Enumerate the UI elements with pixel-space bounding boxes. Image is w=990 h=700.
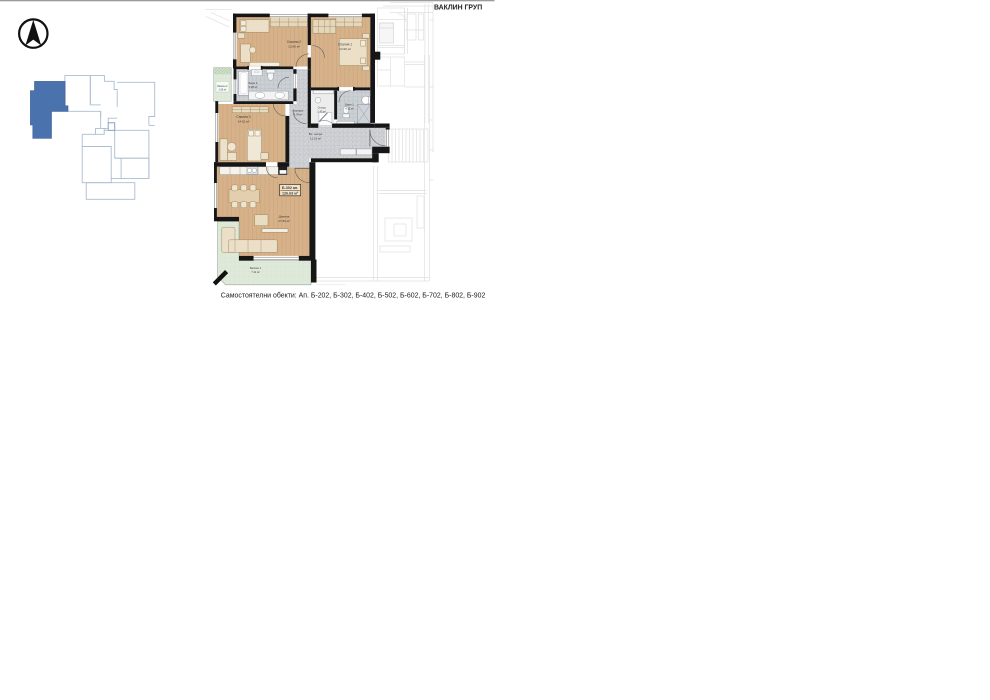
svg-text:126.63 м²: 126.63 м²: [282, 192, 299, 196]
svg-text:Баня 1: Баня 1: [345, 103, 354, 107]
svg-text:Б-302 ап.: Б-302 ап.: [282, 186, 298, 190]
svg-text:7.11 м²: 7.11 м²: [251, 270, 259, 274]
svg-text:4.15 м²: 4.15 м²: [345, 106, 354, 110]
svg-text:27.84 м²: 27.84 м²: [278, 219, 289, 223]
svg-text:13.06 м²: 13.06 м²: [288, 45, 300, 49]
svg-text:ВАКЛИН ГРУП: ВАКЛИН ГРУП: [434, 5, 482, 12]
svg-text:Спалня 1: Спалня 1: [338, 43, 352, 47]
svg-text:Балкон 2: Балкон 2: [217, 85, 228, 88]
svg-text:3.78 м²: 3.78 м²: [294, 112, 303, 116]
svg-text:14.90 м²: 14.90 м²: [339, 47, 351, 51]
svg-text:6.08 м²: 6.08 м²: [248, 85, 257, 89]
svg-text:14.62 м²: 14.62 м²: [238, 119, 250, 123]
svg-text:Самостоятелни обекти: Ап. Б-20: Самостоятелни обекти: Ап. Б-202, Б-302, …: [221, 292, 486, 300]
svg-text:Дневна: Дневна: [279, 215, 290, 219]
svg-text:Спалня 3: Спалня 3: [236, 115, 250, 119]
svg-text:Спалня 2: Спалня 2: [287, 40, 301, 44]
svg-text:Вх. антре: Вх. антре: [309, 132, 323, 136]
svg-text:11.16 м²: 11.16 м²: [310, 137, 321, 141]
svg-text:Балкон 1: Балкон 1: [250, 266, 262, 270]
svg-text:1.60 м²: 1.60 м²: [219, 88, 227, 91]
svg-text:2.43 м²: 2.43 м²: [317, 109, 326, 113]
svg-text:Коридор: Коридор: [293, 109, 304, 113]
svg-text:Склад: Склад: [318, 106, 326, 110]
